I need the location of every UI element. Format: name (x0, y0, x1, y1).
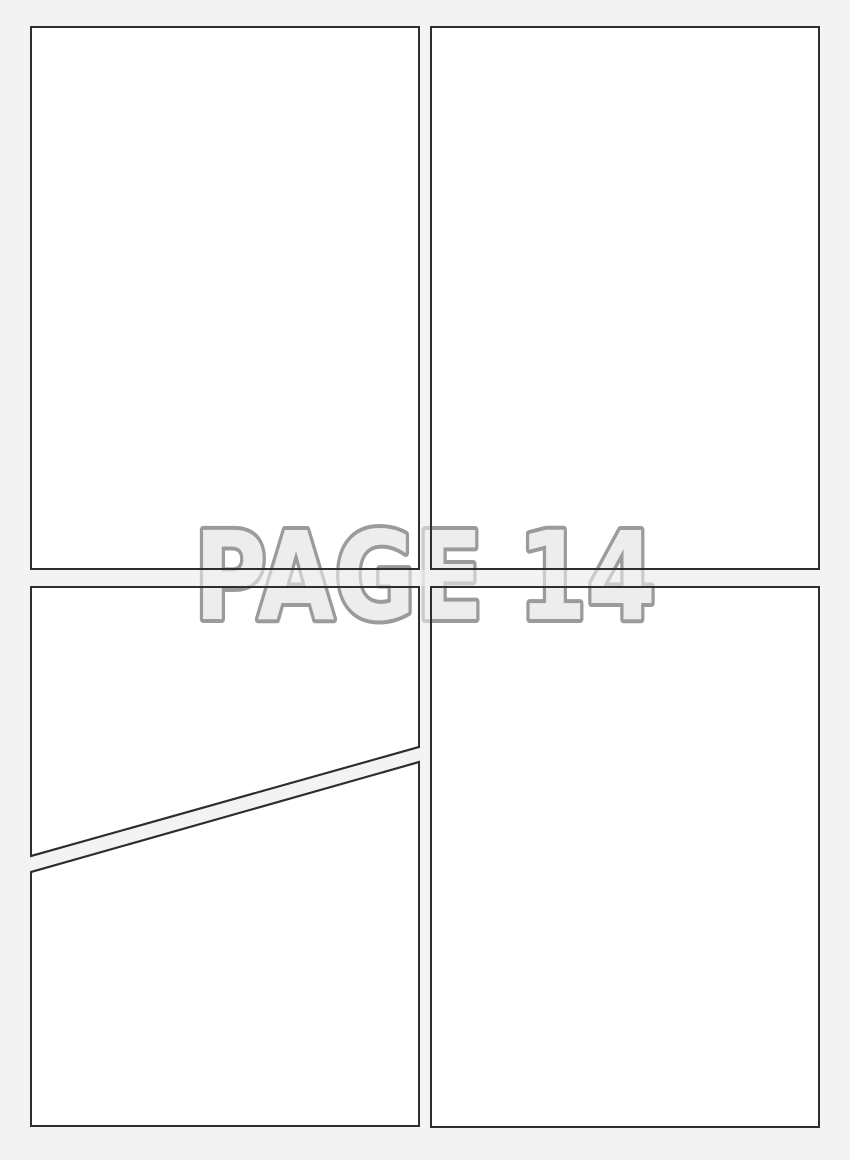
panel-bottom-left-group (29, 586, 421, 1128)
panel-top-left (30, 26, 420, 570)
panel-top-right (430, 26, 820, 570)
panel-bottom-right (430, 586, 820, 1128)
gutter-vertical (420, 26, 430, 1128)
comic-page-template: PAGE 14 (0, 0, 850, 1160)
